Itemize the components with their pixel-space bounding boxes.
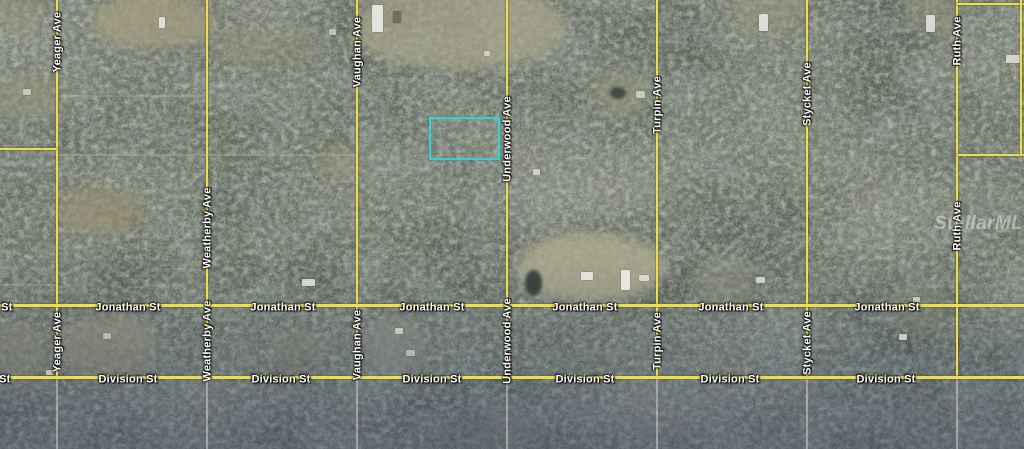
street-label-division-st: Division St — [98, 375, 157, 386]
street-label-underwood-ave: Underwood Ave — [503, 96, 514, 182]
highlighted-parcel-outline — [429, 117, 500, 160]
street-label-jonathan-st: Jonathan St — [250, 303, 315, 314]
street-label-division-st: Division St — [700, 375, 759, 386]
street-labels-layer: Yeager AveYeager AveWeatherby AveWeather… — [0, 0, 1024, 449]
street-label-jonathan-st: Jonathan St — [552, 303, 617, 314]
street-label-vaughan-ave: Vaughan Ave — [353, 310, 364, 380]
street-label-turpin-ave: Turpin Ave — [653, 312, 664, 370]
aerial-map: StellarMLS Yeager AveYeager AveWeatherby… — [0, 0, 1024, 449]
street-label-yeager-ave: Yeager Ave — [53, 312, 64, 373]
street-label-division-st: Division St — [0, 375, 11, 386]
street-label-jonathan-st: Jonathan St — [854, 303, 919, 314]
street-label-weatherby-ave: Weatherby Ave — [203, 187, 214, 268]
street-label-weatherby-ave: Weatherby Ave — [203, 300, 214, 381]
street-label-jonathan-st: Jonathan St — [0, 303, 13, 314]
street-label-division-st: Division St — [555, 375, 614, 386]
street-label-underwood-ave: Underwood Ave — [503, 298, 514, 384]
street-label-ruth-ave: Ruth Ave — [953, 16, 964, 65]
street-label-stycket-ave: Stycket Ave — [803, 62, 814, 126]
street-label-jonathan-st: Jonathan St — [698, 303, 763, 314]
street-label-ruth-ave: Ruth Ave — [953, 201, 964, 250]
street-label-stycket-ave: Stycket Ave — [803, 311, 814, 375]
street-label-division-st: Division St — [402, 375, 461, 386]
street-label-jonathan-st: Jonathan St — [95, 303, 160, 314]
street-label-yeager-ave: Yeager Ave — [53, 12, 64, 73]
street-label-vaughan-ave: Vaughan Ave — [353, 17, 364, 87]
street-label-division-st: Division St — [251, 375, 310, 386]
street-label-turpin-ave: Turpin Ave — [653, 76, 664, 134]
street-label-division-st: Division St — [856, 375, 915, 386]
street-label-jonathan-st: Jonathan St — [399, 303, 464, 314]
